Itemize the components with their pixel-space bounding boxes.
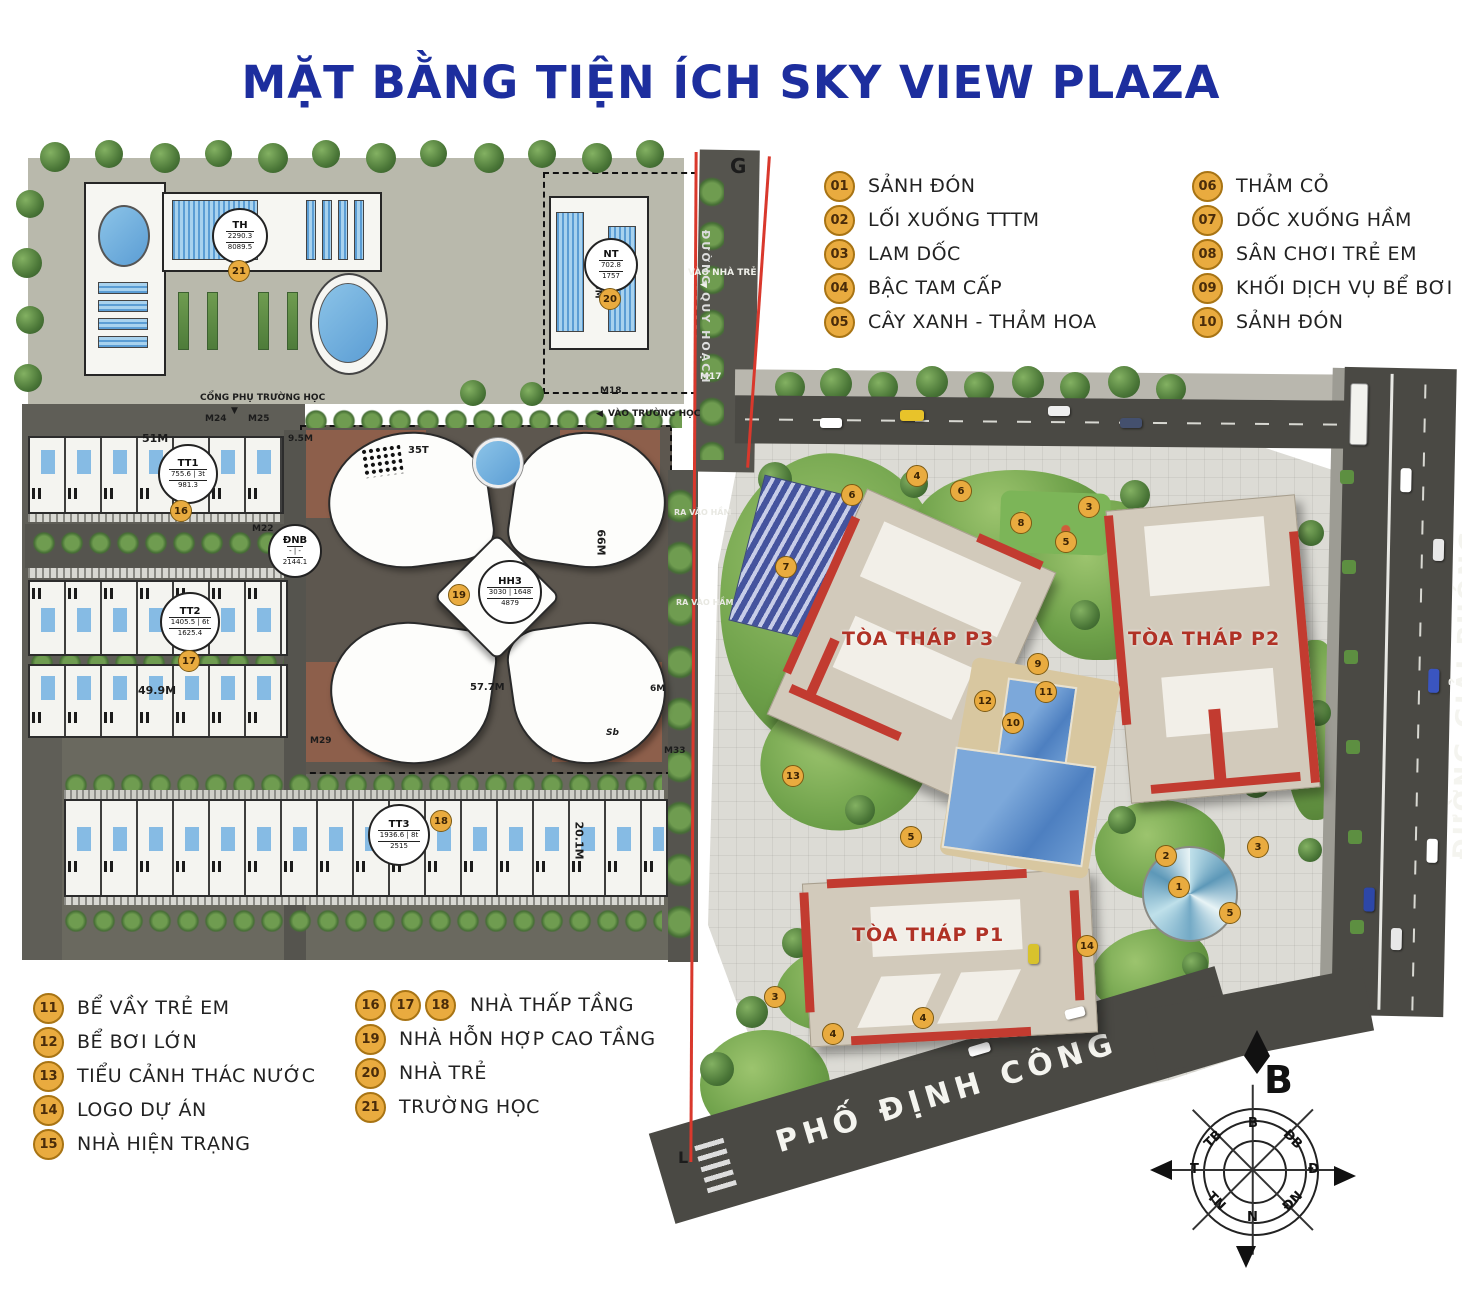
legend-item: 14 LOGO DỰ ÁN <box>33 1095 207 1125</box>
tower-label-p1: TÒA THÁP P1 <box>852 924 1004 946</box>
grid-pattern <box>360 443 404 478</box>
tower-label-p3: TÒA THÁP P3 <box>842 628 994 650</box>
tree <box>1070 600 1100 630</box>
bush <box>1348 830 1362 844</box>
plot-label-tt2: TT2 1405.5 | 6t 1625.4 <box>160 592 220 652</box>
courtyard-pool <box>473 438 523 488</box>
compass-point: N <box>1247 1210 1258 1225</box>
legend-badge: 21 <box>355 1092 386 1123</box>
compass-point: Đ <box>1308 1162 1319 1177</box>
lane <box>338 200 348 260</box>
legend-badge: 01 <box>824 171 855 202</box>
car <box>967 1041 991 1057</box>
compass-arrow-west <box>1150 1160 1172 1180</box>
tree <box>205 140 232 167</box>
compass-point: T <box>1190 1162 1199 1177</box>
dim-66m: 66M <box>595 529 608 555</box>
road-label-giai-phong: ĐƯỜNG GIẢI PHÓNG <box>1447 528 1462 859</box>
garden-strip <box>207 292 218 350</box>
legend-item: 03 LAM DỐC <box>824 239 961 269</box>
vents <box>32 588 284 599</box>
garden-strip <box>258 292 269 350</box>
plot-label-hh3: HH3 3030 | 1648 4879 <box>478 560 542 624</box>
tree <box>258 143 288 173</box>
map-badge: 3 <box>764 986 786 1008</box>
map-badge: 5 <box>1219 902 1241 924</box>
legend-item: 20 NHÀ TRẺ <box>355 1058 487 1088</box>
marker-m29: M29 <box>310 736 331 746</box>
vents <box>68 861 664 872</box>
compass-arrow-east <box>1334 1166 1356 1186</box>
plot-badge-16: 16 <box>170 500 192 522</box>
marker-g: G <box>730 154 746 178</box>
map-badge: 3 <box>1247 836 1269 858</box>
legend-badge: 18 <box>425 990 456 1021</box>
compass-rose: B B ĐB Đ ĐN N TN T TB <box>1150 1020 1360 1270</box>
car <box>1433 539 1444 561</box>
dim-6m: 6M <box>650 684 665 694</box>
tower-label-p2: TÒA THÁP P2 <box>1128 628 1280 650</box>
legend-label: NHÀ TRẺ <box>399 1062 487 1084</box>
tree <box>474 143 504 173</box>
map-badge: 4 <box>822 1023 844 1045</box>
map-badge: 13 <box>782 765 804 787</box>
map-badge: 6 <box>950 480 972 502</box>
townhouse-row-3 <box>28 664 288 738</box>
legend-badge: 07 <box>1192 205 1223 236</box>
taxi <box>900 410 924 421</box>
tree <box>528 140 556 168</box>
tree <box>150 143 180 173</box>
legend-item: 13 TIỂU CẢNH THÁC NƯỚC <box>33 1061 315 1091</box>
legend-label: LOGO DỰ ÁN <box>77 1099 207 1121</box>
legend-badge: 15 <box>33 1129 64 1160</box>
legend-badge: 09 <box>1192 273 1223 304</box>
tree <box>95 140 123 168</box>
car <box>1400 468 1412 492</box>
tree <box>520 382 544 406</box>
map-badge: 7 <box>775 556 797 578</box>
map-badge: 8 <box>1010 512 1032 534</box>
compass-arrow-south <box>1236 1246 1256 1268</box>
legend-label: BỂ VẦY TRẺ EM <box>77 997 229 1019</box>
car <box>1120 418 1142 428</box>
tree <box>16 306 44 334</box>
dim-35t: 35T <box>408 445 429 456</box>
legend-item: 10 SẢNH ĐÓN <box>1192 307 1344 337</box>
label-ra-vao-ham: RA VÀO HẦM <box>676 598 733 607</box>
windows <box>32 450 280 474</box>
vents <box>32 488 280 499</box>
map-badge: 5 <box>1055 531 1077 553</box>
car <box>820 418 842 428</box>
map-badge: 3 <box>1078 496 1100 518</box>
map-badge: 4 <box>906 465 928 487</box>
map-badge: 14 <box>1076 935 1098 957</box>
tree <box>636 140 664 168</box>
label-cong-phu: CỔNG PHỤ TRƯỜNG HỌC <box>200 393 325 403</box>
townhouse-row-tt2 <box>28 580 288 656</box>
tree <box>1012 366 1044 398</box>
steps <box>98 282 148 294</box>
legend-label: SẢNH ĐÓN <box>1236 311 1344 333</box>
tree <box>700 1052 734 1086</box>
roof <box>937 969 1021 1023</box>
plot-badge-18: 18 <box>430 810 452 832</box>
tree <box>845 795 875 825</box>
tree <box>1120 480 1150 510</box>
legend-item: 07 DỐC XUỐNG HẦM <box>1192 205 1412 235</box>
townhouse-row-tt1 <box>28 436 284 514</box>
garden-strip <box>178 292 189 350</box>
marker-m33: M33 <box>664 746 685 756</box>
legend-item: 11 BỂ VẦY TRẺ EM <box>33 993 229 1023</box>
tree <box>12 248 42 278</box>
legend-item: 02 LỐI XUỐNG TTTM <box>824 205 1040 235</box>
legend-label: THẢM CỎ <box>1236 175 1329 197</box>
legend-label: BẬC TAM CẤP <box>868 277 1002 299</box>
street-trees <box>30 530 280 560</box>
legend-badge: 13 <box>33 1061 64 1092</box>
compass-point: B <box>1248 1116 1258 1131</box>
marker-m22: M22 <box>252 524 273 534</box>
crosswalk <box>693 1133 737 1193</box>
bush <box>1342 560 1356 574</box>
bush <box>1346 740 1360 754</box>
plot-badge-17: 17 <box>178 650 200 672</box>
legend-label: LAM DỐC <box>868 243 961 265</box>
main-pool <box>942 747 1097 868</box>
steps <box>98 300 148 312</box>
map-badge: 11 <box>1035 681 1057 703</box>
legend-badge: 04 <box>824 273 855 304</box>
legend-badge: 20 <box>355 1058 386 1089</box>
road-label-quy-hoach: ĐƯỜNG QUY HOẠCH <box>699 230 712 385</box>
plot-badge-20: 20 <box>599 288 621 310</box>
tree <box>582 143 612 173</box>
lane <box>354 200 364 260</box>
legend-label: SÂN CHƠI TRẺ EM <box>1236 243 1417 265</box>
road-giai-phong: ĐƯỜNG GIẢI PHÓNG <box>1331 367 1457 1017</box>
map-badge: 2 <box>1155 845 1177 867</box>
tree <box>460 380 486 406</box>
tree <box>366 143 396 173</box>
legend-item: 09 KHỐI DỊCH VỤ BỂ BƠI <box>1192 273 1453 303</box>
bush <box>1340 470 1354 484</box>
legend-item: 19 NHÀ HỖN HỢP CAO TẦNG <box>355 1024 656 1054</box>
dim-sb: Sb <box>606 728 619 738</box>
tree <box>16 190 44 218</box>
map-badge: 6 <box>841 484 863 506</box>
legend-badge: 02 <box>824 205 855 236</box>
legend-item: 21 TRƯỜNG HỌC <box>355 1092 540 1122</box>
legend-badge: 17 <box>390 990 421 1021</box>
legend-badge: 10 <box>1192 307 1223 338</box>
tree <box>1298 520 1324 546</box>
north-arrow-icon <box>1244 1030 1270 1056</box>
legend-item: 01 SẢNH ĐÓN <box>824 171 976 201</box>
legend-badge: 06 <box>1192 171 1223 202</box>
vents <box>32 712 284 723</box>
lane-marking <box>1377 374 1393 1010</box>
roof-strip <box>64 790 664 799</box>
map-badge: 10 <box>1002 712 1024 734</box>
marker-m24: M24 <box>205 414 226 424</box>
legend-item: 04 BẬC TAM CẤP <box>824 273 1002 303</box>
plot-badge-19: 19 <box>448 584 470 606</box>
dim-51m: 51M <box>142 432 168 445</box>
legend-badge: 12 <box>33 1027 64 1058</box>
legend-label: KHỐI DỊCH VỤ BỂ BƠI <box>1236 277 1453 299</box>
compass-north-letter: B <box>1264 1058 1293 1102</box>
dim-9-5m: 9.5M <box>288 434 313 444</box>
legend-item: 05 CÂY XANH - THẢM HOA <box>824 307 1097 337</box>
plot-label-dnb: ĐNB - | - 2144.1 <box>268 524 322 578</box>
legend-label: BỂ BƠI LỚN <box>77 1031 197 1053</box>
dim-49-9m: 49.9M <box>138 684 176 697</box>
tree <box>14 364 42 392</box>
lane-marking <box>1411 375 1426 1011</box>
tower-p1 <box>802 869 1098 1048</box>
tree <box>40 142 70 172</box>
legend-badge: 16 <box>355 990 386 1021</box>
tree <box>420 140 447 167</box>
marker-m25: M25 <box>248 414 269 424</box>
round-pool-large <box>318 283 378 363</box>
marker-l: L <box>678 1148 688 1167</box>
steps <box>98 318 148 330</box>
arrow-left-icon: ◀ <box>596 409 603 419</box>
arrow-down-icon: ▼ <box>231 406 238 416</box>
car <box>1426 839 1438 863</box>
legend-label: NHÀ HIỆN TRẠNG <box>77 1133 250 1155</box>
legend-badge: 19 <box>355 1024 386 1055</box>
dim-20-1m: 20.1M <box>573 821 586 859</box>
legend-label: NHÀ HỖN HỢP CAO TẦNG <box>399 1028 656 1050</box>
plot-badge-21: 21 <box>228 260 250 282</box>
map-badge: 5 <box>900 826 922 848</box>
tram <box>1349 383 1368 445</box>
marker-m18: M18 <box>600 386 621 396</box>
legend-label: SẢNH ĐÓN <box>868 175 976 197</box>
car <box>1363 887 1375 911</box>
lane <box>306 200 316 260</box>
tree <box>1108 366 1140 398</box>
label-ra-vao-ham: RA VÀO HẦM <box>674 508 731 517</box>
sidewalk <box>28 568 284 578</box>
map-badge: 1 <box>1168 876 1190 898</box>
windows <box>32 608 284 632</box>
legend-item: 08 SÂN CHƠI TRẺ EM <box>1192 239 1417 269</box>
plot-label-tt1: TT1 755.6 | 3t 981.3 <box>158 444 218 504</box>
page-title: MẶT BẰNG TIỆN ÍCH SKY VIEW PLAZA <box>0 56 1462 109</box>
label-vao-truong-hoc: VÀO TRƯỜNG HỌC <box>608 409 700 419</box>
car <box>1028 944 1039 964</box>
legend-badge: 03 <box>824 239 855 270</box>
legend-badge: 11 <box>33 993 64 1024</box>
site-plan-page: MẶT BẰNG TIỆN ÍCH SKY VIEW PLAZA 01 SẢNH… <box>0 0 1462 1304</box>
tree <box>1108 806 1136 834</box>
tree <box>736 996 768 1028</box>
legend-label: CÂY XANH - THẢM HOA <box>868 311 1097 333</box>
legend-label: TIỂU CẢNH THÁC NƯỚC <box>77 1065 315 1087</box>
legend-item: 15 NHÀ HIỆN TRẠNG <box>33 1129 250 1159</box>
plot-label-th: TH 2290.3 8089.5 <box>212 208 268 264</box>
street-trees <box>668 480 692 950</box>
tree <box>916 366 948 398</box>
steps <box>98 336 148 348</box>
tree <box>1298 838 1322 862</box>
bush <box>1344 650 1358 664</box>
plot-label-tt3: TT3 1936.6 | 8t 2515 <box>368 804 430 866</box>
map-badge: 9 <box>1027 653 1049 675</box>
legend-label: TRƯỜNG HỌC <box>399 1096 540 1118</box>
legend-label: NHÀ THẤP TẦNG <box>470 994 634 1016</box>
car <box>1428 669 1440 693</box>
legend-badge: 05 <box>824 307 855 338</box>
roof <box>1144 516 1270 596</box>
legend-label: LỐI XUỐNG TTTM <box>868 209 1040 231</box>
garden-strip <box>287 292 298 350</box>
car <box>1048 406 1070 416</box>
plot-label-nt: NT 702.8 1757 <box>584 238 638 292</box>
street-trees <box>62 908 662 932</box>
map-badge: 4 <box>912 1007 934 1029</box>
legend-badge: 14 <box>33 1095 64 1126</box>
legend-label: DỐC XUỐNG HẦM <box>1236 209 1412 231</box>
round-pool-small <box>98 205 150 267</box>
car <box>1391 928 1402 950</box>
map-badge: 12 <box>974 690 996 712</box>
bush <box>1350 920 1364 934</box>
lane <box>322 200 332 260</box>
legend-item: 12 BỂ BƠI LỚN <box>33 1027 197 1057</box>
dim-57-7m: 57.7M <box>470 682 505 693</box>
nt-wing <box>556 212 584 332</box>
tree <box>312 140 340 168</box>
legend-item: 06 THẢM CỎ <box>1192 171 1329 201</box>
legend-badge: 08 <box>1192 239 1223 270</box>
legend-item: 16 17 18 NHÀ THẤP TẦNG <box>355 990 634 1020</box>
